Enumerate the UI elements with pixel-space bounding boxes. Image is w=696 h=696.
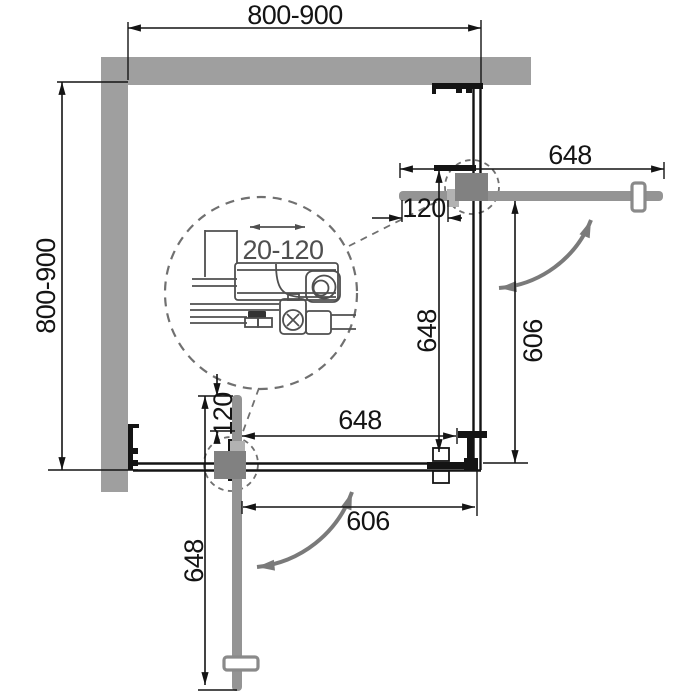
right-hinge-block xyxy=(455,173,488,201)
top-wall xyxy=(101,57,531,85)
right-door-handle xyxy=(632,183,645,211)
dim-label-bottom-door-open: 648 xyxy=(179,539,209,583)
dim-label-right-door: 648 xyxy=(412,309,442,353)
bottom-door-handle xyxy=(224,657,258,670)
gasket-block xyxy=(248,311,266,318)
shower-enclosure-plan-drawing: 20-120 xyxy=(0,0,696,696)
technical-drawing-page: 20-120 xyxy=(0,0,696,696)
dim-label-bottom-entry: 606 xyxy=(346,506,390,536)
corner-clamp-top xyxy=(433,448,449,461)
left-wall-profile xyxy=(128,424,133,470)
corner-clamp-bottom xyxy=(433,471,449,483)
dim-label-bottom-door: 648 xyxy=(338,405,382,435)
dim-label-bottom-profile: 120 xyxy=(208,392,238,436)
left-wall xyxy=(101,57,128,492)
dim-label-overall-width: 800-900 xyxy=(247,0,343,30)
right-hinge-mount-bar xyxy=(434,165,476,171)
dim-label-overall-depth: 800-900 xyxy=(31,238,61,334)
dim-label-right-entry: 606 xyxy=(518,319,548,363)
bottom-hinge-block xyxy=(214,451,246,479)
bottom-door-leaf-open xyxy=(232,395,242,691)
dim-label-right-door-open: 648 xyxy=(548,140,592,170)
detail-adjust-range-label: 20-120 xyxy=(242,235,323,265)
